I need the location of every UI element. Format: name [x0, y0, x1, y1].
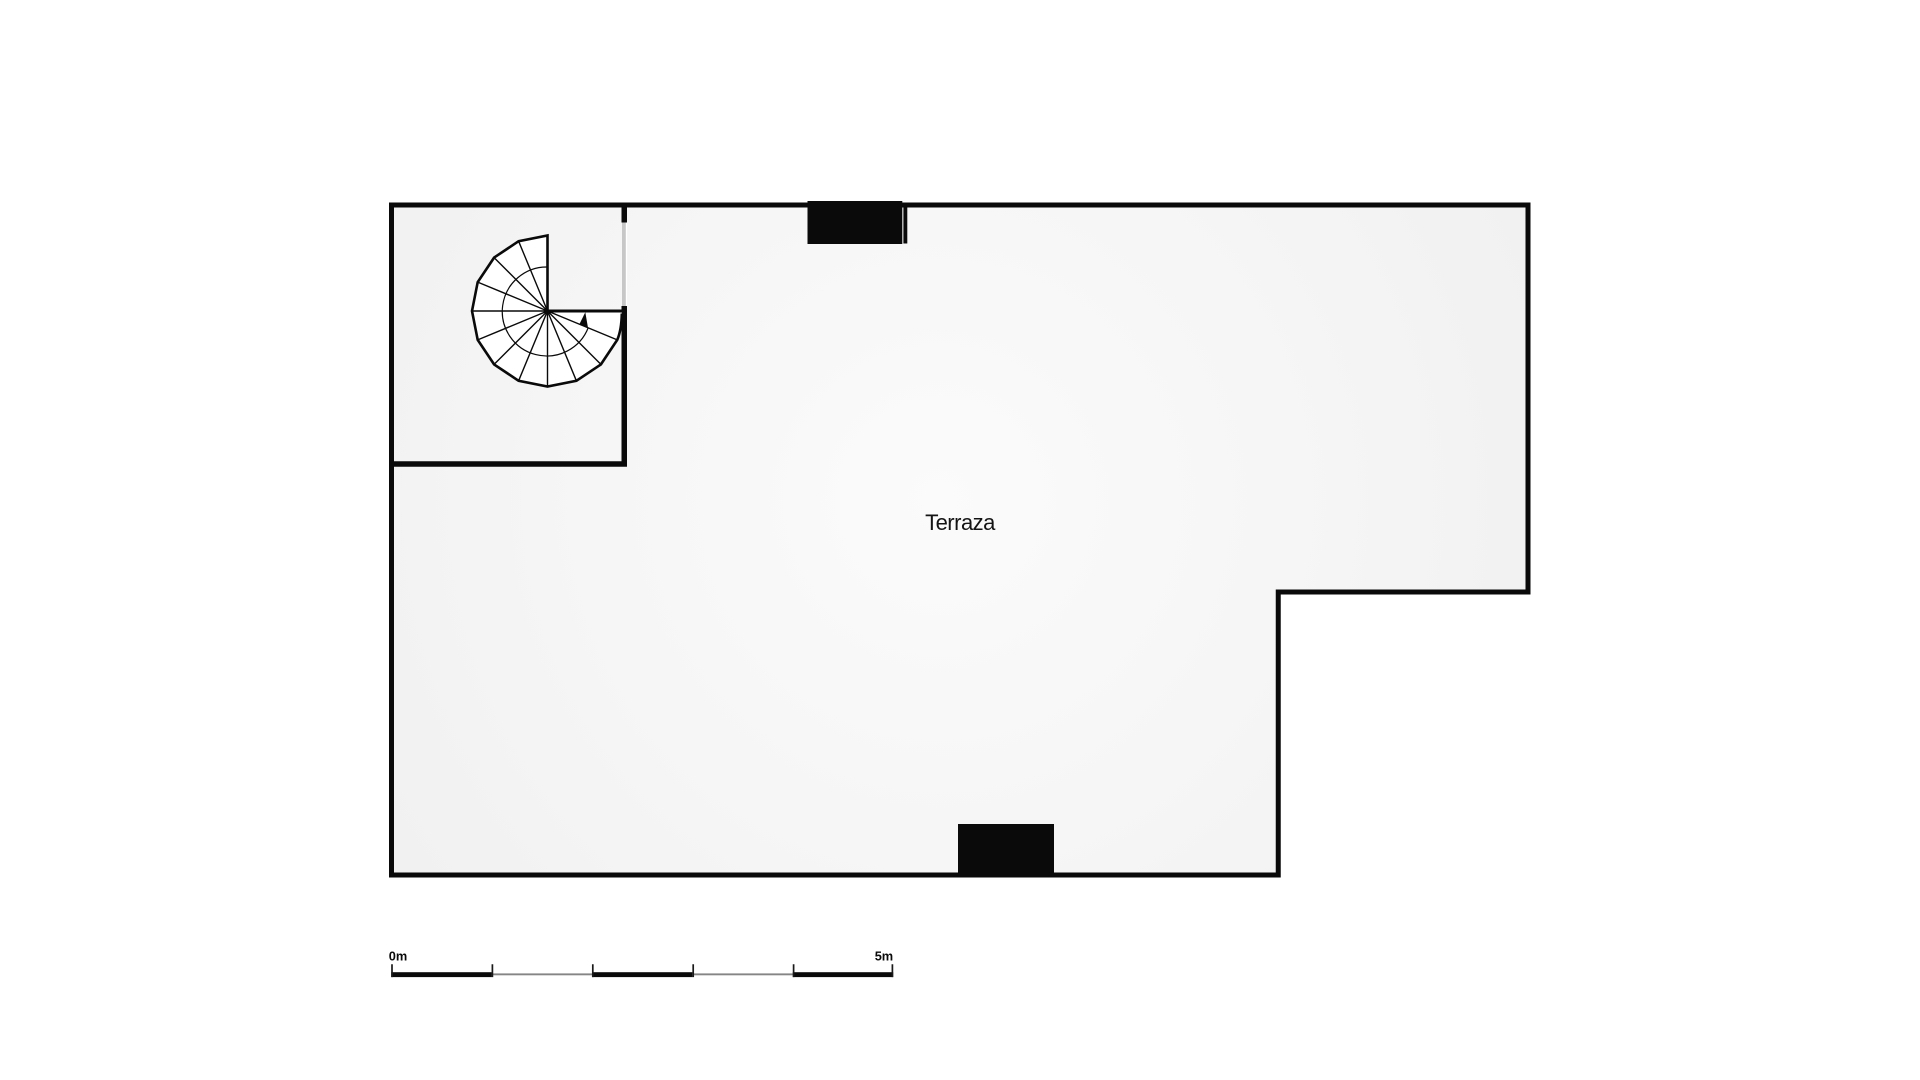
svg-text:0m: 0m: [389, 949, 408, 964]
svg-text:5m: 5m: [875, 949, 894, 964]
svg-text:Terraza: Terraza: [925, 510, 996, 535]
